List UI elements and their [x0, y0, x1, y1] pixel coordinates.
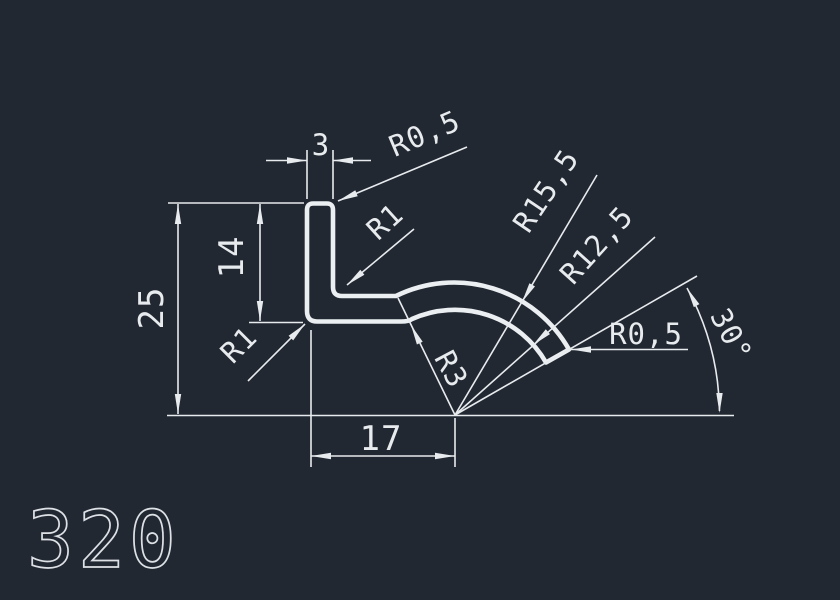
dim-text-r1-outer: R1	[214, 320, 264, 370]
arrowhead	[716, 393, 722, 413]
cad-drawing-canvas: 3 R0,5 R1 25 14	[0, 0, 840, 600]
arrowhead	[411, 325, 423, 345]
arrowhead	[333, 157, 353, 163]
leader-radius-top: R0,5	[338, 103, 467, 201]
leader-radius-inner-corner: R1	[347, 197, 414, 285]
dim-text-30deg: 30°	[703, 303, 759, 368]
arrowhead	[287, 157, 307, 163]
dim-text-r125: R12,5	[553, 199, 640, 290]
dim-flange-height: 14	[212, 204, 303, 323]
dim-total-height: 25	[132, 203, 304, 414]
arrowhead	[311, 453, 331, 459]
part-number-block: 320	[27, 496, 180, 586]
angle-arc	[687, 288, 720, 411]
arrowhead	[338, 190, 358, 201]
leader-radius-inner-arc: R12,5	[455, 199, 655, 415]
leader-radius-transition: R3	[398, 298, 475, 415]
leader-radius-outer-corner: R1	[214, 320, 305, 381]
dim-text-25: 25	[132, 287, 172, 330]
arrowhead	[289, 324, 305, 340]
dim-text-r155: R15,5	[506, 143, 586, 239]
arrowhead	[347, 270, 364, 285]
dim-text-r3: R3	[428, 345, 475, 394]
dim-text-3: 3	[312, 128, 330, 162]
arrowhead	[687, 288, 699, 307]
technical-drawing: 3 R0,5 R1 25 14	[0, 0, 840, 600]
arrowhead	[257, 301, 263, 321]
dim-top-width: 3	[266, 128, 371, 199]
arrowhead	[435, 453, 455, 459]
arrowhead	[533, 329, 550, 345]
arrowhead	[522, 283, 535, 302]
dim-text-14: 14	[212, 236, 252, 279]
dim-text-r05-top: R0,5	[384, 103, 465, 163]
arrowhead	[175, 394, 181, 414]
leader-radius-tip: R0,5	[571, 317, 688, 353]
arrowhead	[257, 204, 263, 224]
dim-bottom-length: 17	[311, 330, 455, 467]
dim-angle: 30°	[455, 276, 759, 415]
part-number: 320	[27, 496, 180, 586]
dim-text-17: 17	[360, 419, 403, 459]
arrowhead	[175, 204, 181, 224]
dim-text-r05-tip: R0,5	[609, 317, 683, 351]
